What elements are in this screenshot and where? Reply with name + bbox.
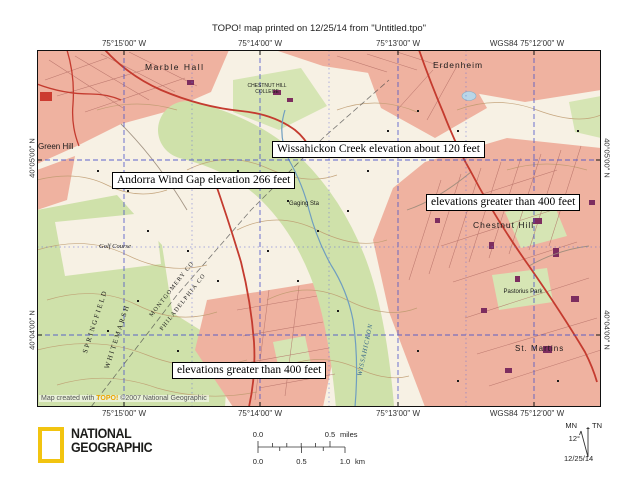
coord-left-40-04: 40°04'00" N [28,310,37,350]
place-erdenheim: Erdenheim [433,60,483,70]
scale-km-unit: km [355,457,365,466]
map-attribution: Map created with TOPO! ©2007 National Ge… [39,395,209,402]
scale-km-0: 0.0 [253,457,263,466]
declination-diagram: MN TN 12° 12/25/14 [556,417,622,473]
coord-left-40-05: 40°05'00" N [28,138,37,178]
place-golf-course: Golf Course [99,243,131,250]
coord-top-wgs84: WGS84 75°12'00" W [490,39,564,48]
scale-bar: 0.0 0.5 miles 0.0 0.5 1.0 km [248,428,383,468]
topo-map-art: Marble Hall Erdenheim Green Hill Chestnu… [37,50,601,407]
coord-bottom-wgs84: WGS84 75°12'00" W [490,409,564,418]
place-green-hill: Green Hill [38,142,74,151]
callout-andorra-wind-gap-elevation: Andorra Wind Gap elevation 266 feet [112,172,295,189]
coord-top-75-14: 75°14'00" W [238,39,282,48]
scale-km-10: 1.0 [340,457,350,466]
coord-bottom-75-14: 75°14'00" W [238,409,282,418]
coord-right-40-04: 40°04'00" N [603,310,612,350]
callout-elevations-400-right: elevations greater than 400 feet [426,194,580,211]
compass-date: 12/25/14 [564,454,593,463]
compass-declination-value: 12° [569,434,580,443]
national-geographic-logo-icon [38,427,64,463]
coord-top-75-13: 75°13'00" W [376,39,420,48]
callout-wissahickon-creek-elevation: Wissahickon Creek elevation about 120 fe… [272,141,485,158]
scale-miles-unit: miles [340,430,358,439]
coord-bottom-75-15: 75°15'00" W [102,409,146,418]
scale-miles-05: 0.5 [325,430,335,439]
compass-mn-label: MN [565,421,577,430]
place-marble-hall: Marble Hall [145,62,205,72]
place-pastorius-park: Pastorius Park [503,289,543,295]
compass-tn-label: TN [592,421,602,430]
scale-miles-0: 0.0 [253,430,263,439]
national-geographic-logo-text: NATIONAL GEOGRAPHIC [71,427,152,455]
place-college-line2: COLLEGE [255,89,279,95]
place-gaging-sta: Gaging Sta [289,201,320,207]
place-chestnut-hill: Chestnut Hill [473,220,534,230]
topo-map-image: Marble Hall Erdenheim Green Hill Chestnu… [37,50,601,407]
coord-top-75-15: 75°15'00" W [102,39,146,48]
pond [462,92,476,101]
topo-brand: TOPO! [96,395,118,402]
coord-bottom-75-13: 75°13'00" W [376,409,420,418]
attribution-prefix: Map created with [41,395,96,402]
coord-right-40-05: 40°05'00" N [603,138,612,178]
page-title: TOPO! map printed on 12/25/14 from "Unti… [37,23,601,34]
logo-line2: GEOGRAPHIC [71,441,152,455]
attribution-suffix: ©2007 National Geographic [118,395,206,402]
callout-elevations-400-bottom: elevations greater than 400 feet [172,362,326,379]
scale-km-05: 0.5 [296,457,306,466]
printed-map-page: TOPO! map printed on 12/25/14 from "Unti… [0,0,625,483]
logo-line1: NATIONAL [71,427,152,441]
place-st-martins: St. Martins [515,344,564,353]
